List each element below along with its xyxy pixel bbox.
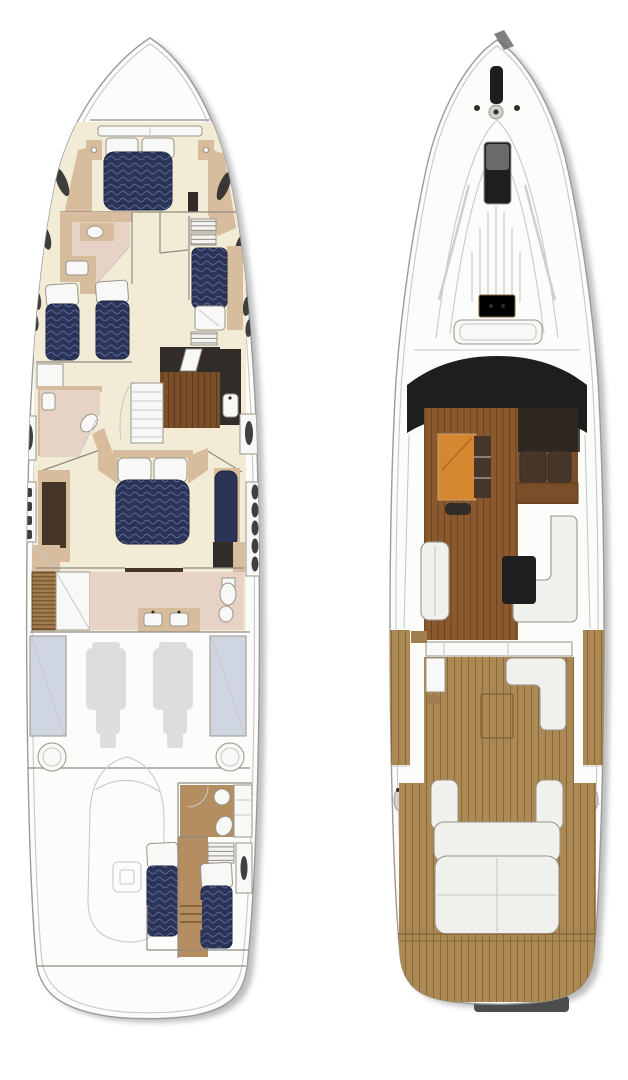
vanity-sink [170,613,188,626]
crew-cabinet [234,785,252,837]
cockpit [424,657,574,783]
berth-pillow [45,283,78,307]
helm-console [516,483,578,503]
porthole [38,743,66,771]
helm-seat [520,451,546,483]
hull-window [252,485,259,500]
dinette [438,434,476,500]
corner-cabinet [213,542,233,568]
locker [188,192,198,212]
master-bed [116,480,189,544]
lower-deck-plan [0,0,314,1080]
main-deck-plan [314,0,628,1080]
crew-berth [201,886,232,948]
port-dresser [42,482,66,548]
single-berth [96,301,129,359]
crew-berth [147,866,178,936]
hull-window [252,557,259,572]
sink [42,393,55,410]
locker [191,219,216,231]
vent-cabinet [37,364,63,388]
helm-seat [548,451,571,483]
ac-unit [208,843,234,863]
locker [191,233,216,245]
porthole [216,743,244,771]
hull-window [241,856,248,880]
deck-fitting [474,105,480,111]
aft-deck [394,780,600,1002]
vanity-sink [144,613,162,626]
master-bathroom [30,568,250,632]
lamp-port [91,147,96,152]
wet-bar [426,658,445,692]
deck-fitting [514,105,520,111]
windlass-channel [490,66,503,104]
crew-pillow [200,862,232,889]
vberth-bed [104,152,172,210]
dinette-cushions [474,436,491,498]
deck-box [479,295,515,317]
hull-window [22,488,32,497]
crew-pillow [146,842,178,869]
bidet [219,606,233,622]
bedding [195,306,225,330]
master-pillow [154,458,187,482]
toilet [220,583,236,605]
galley-floor [160,372,220,428]
vent-cabinet [191,332,217,345]
deck-plan-canvas [0,0,628,1080]
sink [87,226,103,238]
single-berth [46,304,79,360]
lamp-stbd [203,147,208,152]
swim-platform [394,934,600,1002]
salon [404,408,590,656]
hull-window [252,503,259,518]
crew-steps [180,900,202,930]
hull-window [252,539,259,554]
nightstand [80,280,96,294]
vanity-sink [66,261,88,275]
master-pillow [118,458,151,482]
salon-table [502,556,536,604]
galley [160,347,241,428]
ottoman [445,503,471,515]
hull-window [245,421,253,445]
hull-window [252,521,259,536]
sideboard [411,631,427,643]
crew-sink [214,789,230,805]
bunk-berth [192,248,227,308]
bow-cleat [435,84,449,105]
aft-bulkhead [426,642,572,656]
berth-pillow [95,280,128,304]
stbd-chaise [215,471,237,547]
wardrobe [32,572,56,630]
